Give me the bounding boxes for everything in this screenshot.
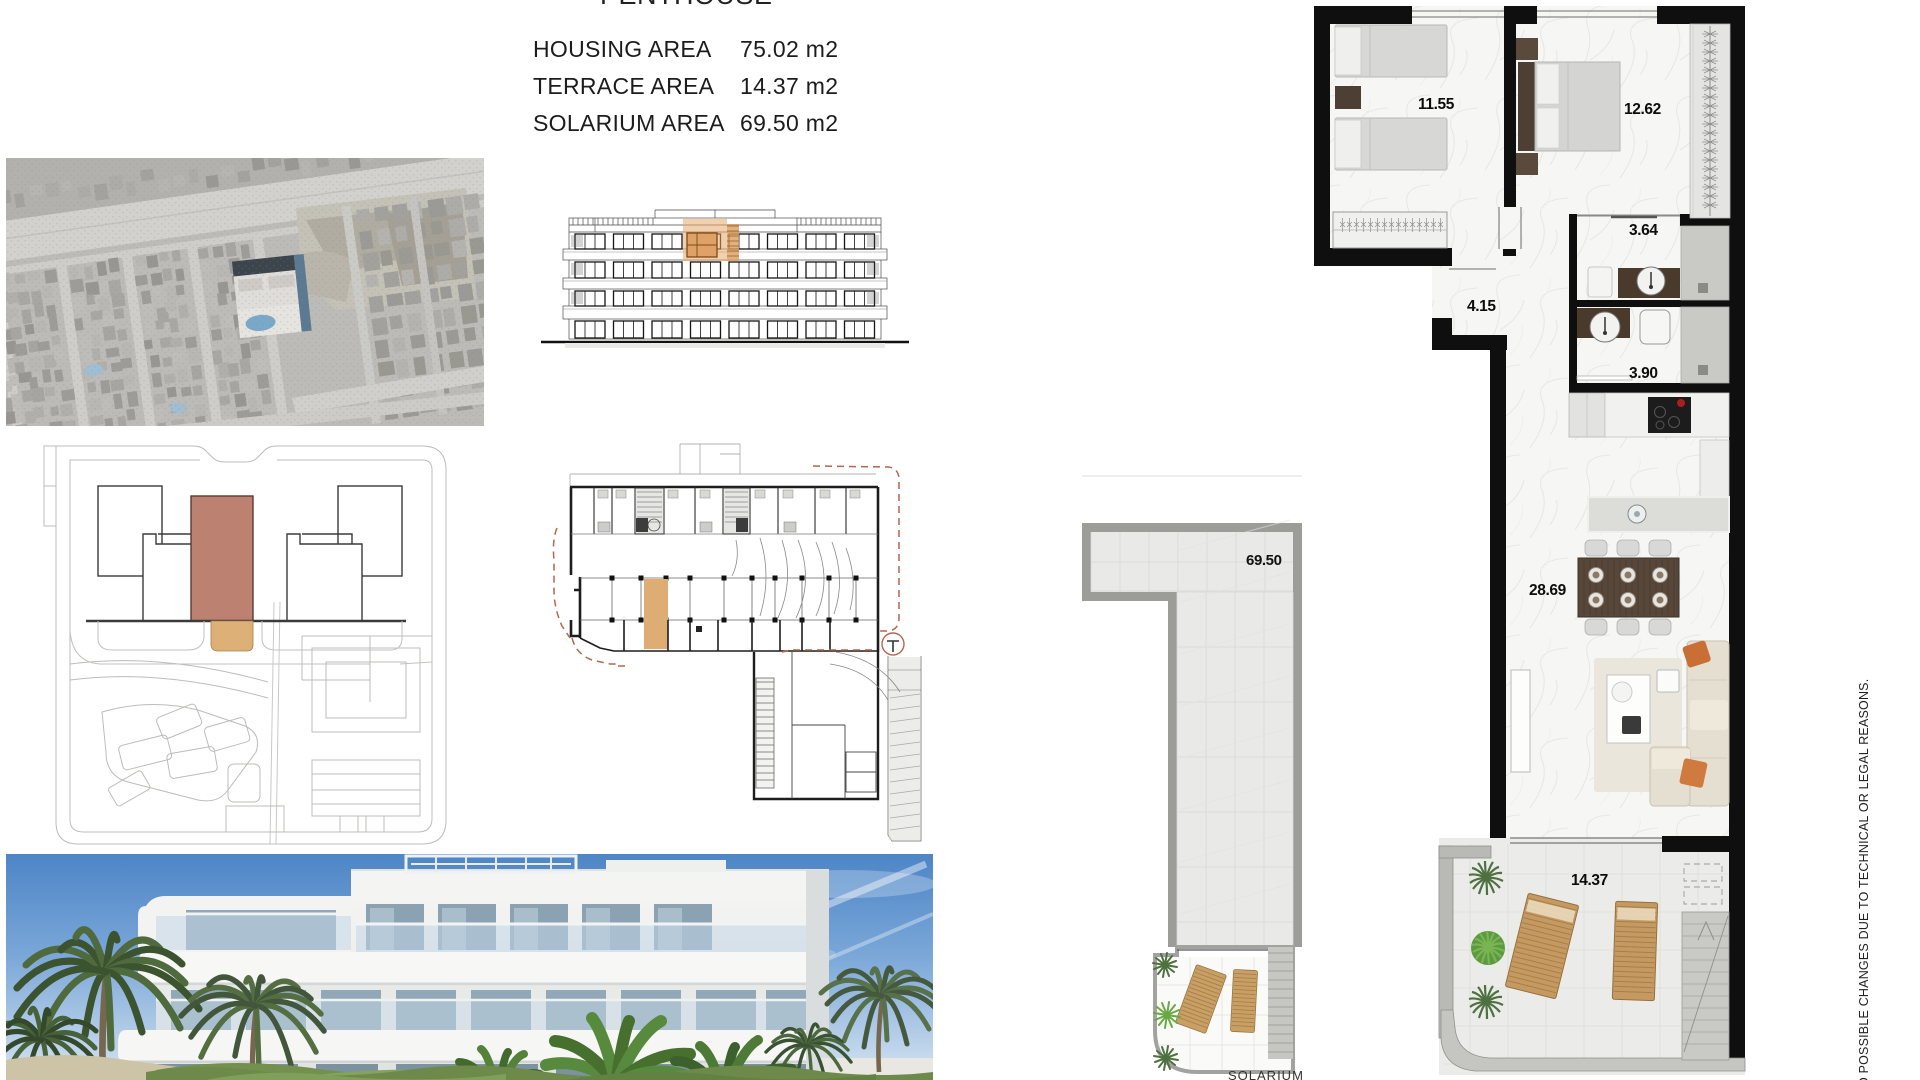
svg-text:69.50: 69.50	[1246, 552, 1282, 569]
svg-text:11.55: 11.55	[1418, 96, 1455, 113]
svg-text:12.62: 12.62	[1624, 101, 1661, 118]
svg-text:28.69: 28.69	[1529, 582, 1567, 599]
svg-text:14.37: 14.37	[1571, 872, 1608, 889]
svg-text:SOLARIUM: SOLARIUM	[1228, 1068, 1304, 1080]
svg-text:4.15: 4.15	[1467, 298, 1496, 315]
svg-text:3.90: 3.90	[1629, 365, 1658, 382]
svg-text:3.64: 3.64	[1629, 222, 1658, 239]
